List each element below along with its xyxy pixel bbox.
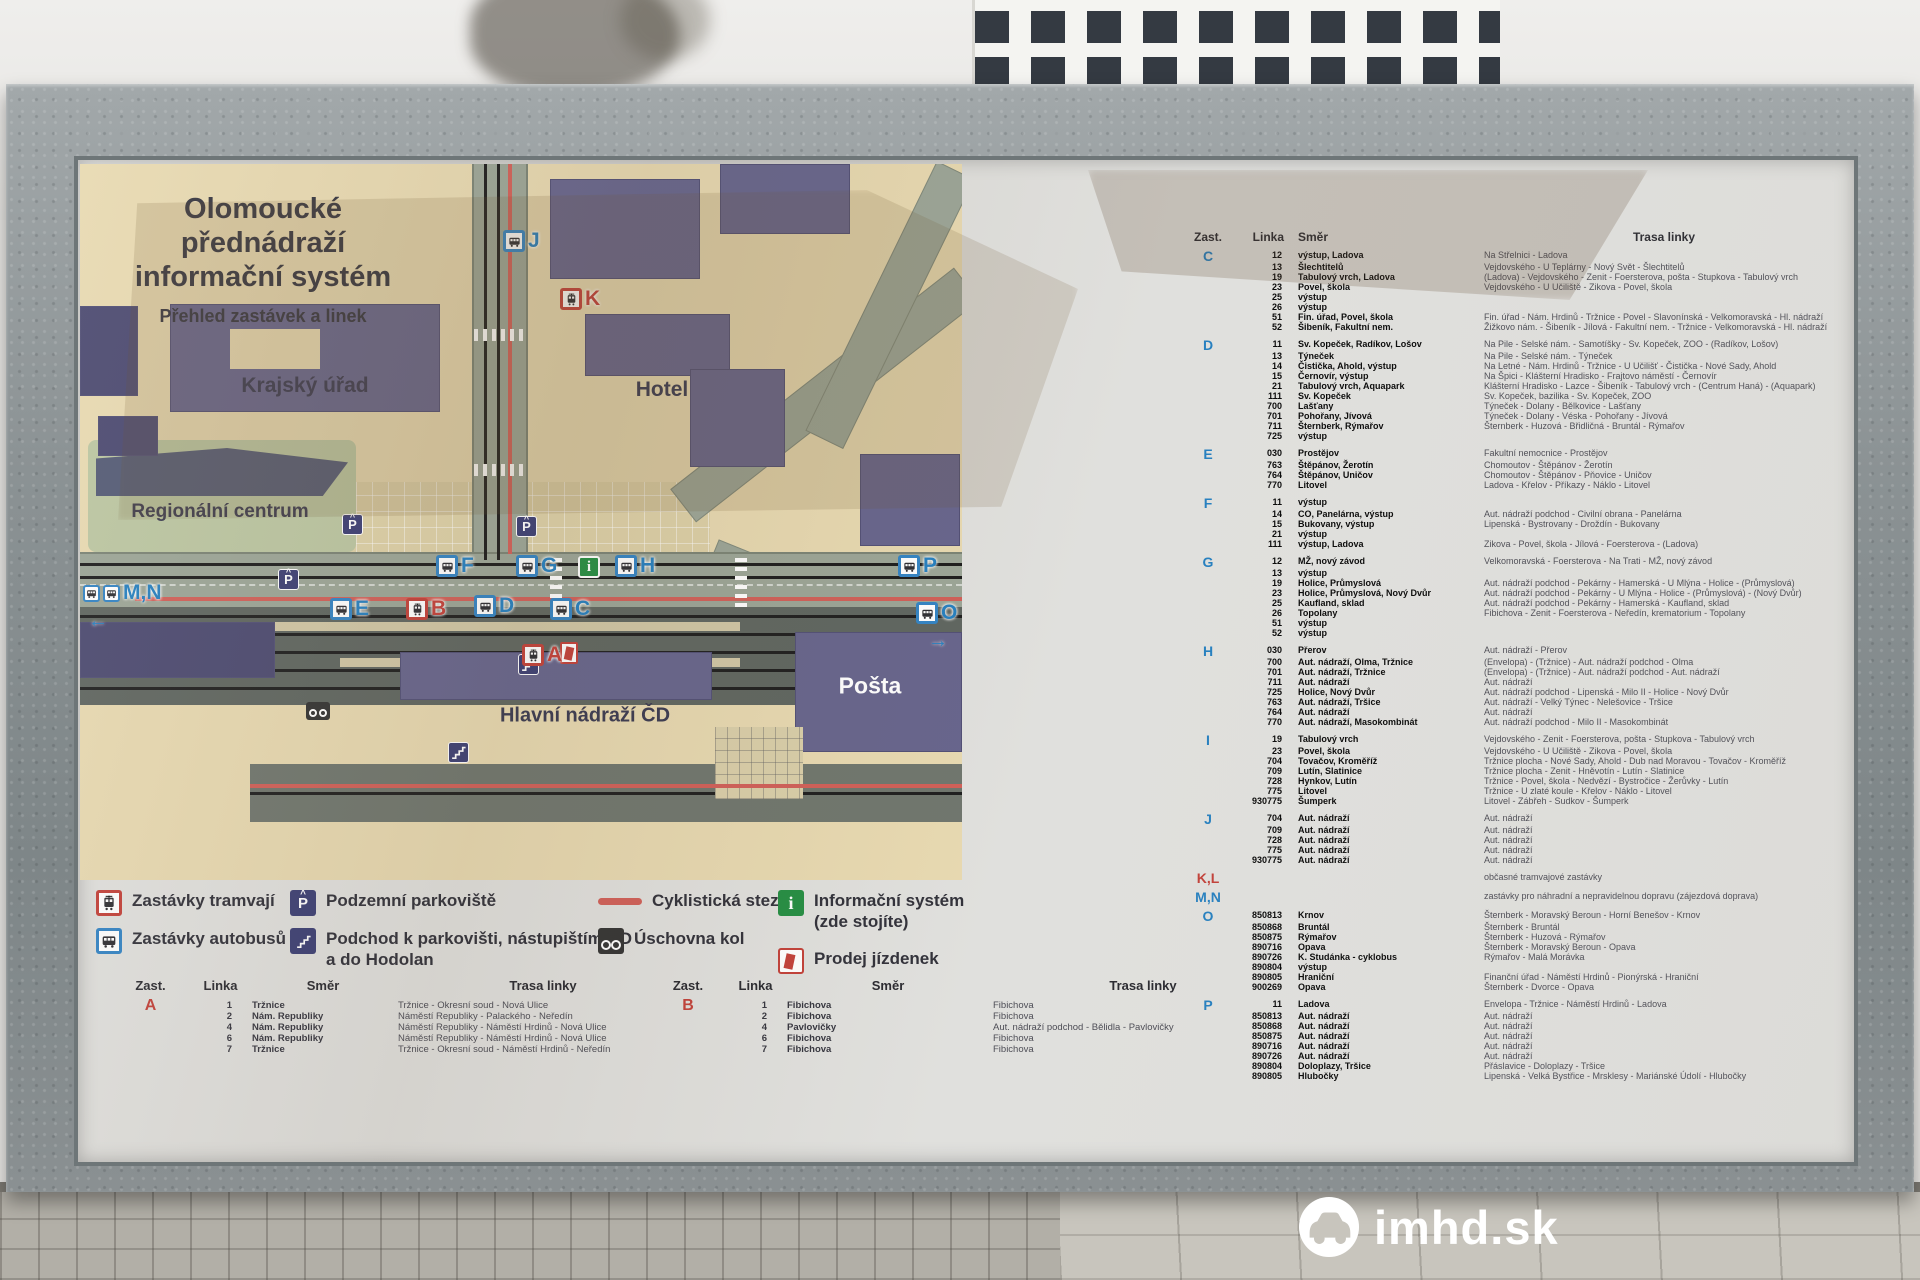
smer-cell: výstup, Ladova <box>1298 539 1484 549</box>
trasa-cell: Aut. nádraží <box>1484 1041 1848 1051</box>
zast-cell: H <box>1176 645 1240 657</box>
linka-cell: 764 <box>1240 707 1298 717</box>
zast-cell <box>1176 982 1240 992</box>
trasa-cell: Tržnice plocha - Nové Sady, Ahold - Dub … <box>1484 756 1848 766</box>
zast-cell <box>1176 480 1240 490</box>
linka-cell: 850868 <box>1240 922 1298 932</box>
trasa-cell: Aut. nádraží podchod - Lipenská - Milo I… <box>1484 687 1848 697</box>
cycle-path <box>508 164 512 554</box>
linka-cell: 709 <box>1240 825 1298 835</box>
zast-cell: M,N <box>1176 891 1240 903</box>
trasa-cell <box>1484 618 1848 628</box>
smer-cell: výstup <box>1298 628 1484 638</box>
linka-cell: 701 <box>1240 667 1298 677</box>
zast-cell <box>1176 1031 1240 1041</box>
linka-cell: 890804 <box>1240 962 1298 972</box>
smer-cell: Hraniční <box>1298 972 1484 982</box>
bus-stop-icon <box>330 598 352 620</box>
smer-cell: Sv. Kopeček <box>1298 391 1484 401</box>
trasa-cell: Přáslavice - Doloplazy - Tršice <box>1484 1061 1848 1071</box>
trasa-cell: Aut. nádraží <box>1484 825 1848 835</box>
label-posta: Pošta <box>839 673 902 700</box>
smer-cell: Sv. Kopeček, Radíkov, Lošov <box>1298 339 1484 351</box>
linka-cell: 13 <box>1240 568 1298 578</box>
tram-track <box>497 164 500 560</box>
linka-cell: 15 <box>1240 371 1298 381</box>
header-zast: Zast. <box>108 978 193 993</box>
direction-arrow-icon: ← <box>88 610 108 633</box>
bike-storage-marker <box>306 702 330 720</box>
trasa-cell: Tržnice - Povel, škola - Nedvězí - Bystr… <box>1484 776 1848 786</box>
smer-cell: Krnov <box>1298 910 1484 922</box>
trasa-cell: Náměstí Republiky - Náměstí Hrdinů - Nov… <box>398 1033 688 1044</box>
stop-letter: O <box>941 602 957 624</box>
ticket-sales-icon <box>778 948 804 974</box>
right-table-section-K,L: K,Lobčasné tramvajové zastávky <box>1176 872 1848 884</box>
right-table-section-D: D11Sv. Kopeček, Radíkov, LošovNa Pile - … <box>1176 339 1848 441</box>
right-table-section-G: G12MŽ, nový závodVelkomoravská - Foerste… <box>1176 556 1848 638</box>
linka-cell: 890804 <box>1240 1061 1298 1071</box>
smer-cell: Aut. nádraží <box>1298 1021 1484 1031</box>
linka-cell: 11 <box>1240 497 1298 509</box>
smer-cell: Čistička, Ahold, výstup <box>1298 361 1484 371</box>
zast-cell <box>1176 1051 1240 1061</box>
trasa-cell: (Envelopa) - (Tržnice) - Aut. nádraží po… <box>1484 667 1848 677</box>
stop-letter: G <box>541 555 557 577</box>
building <box>860 454 960 546</box>
underground-parking-sign: ^P <box>342 514 363 535</box>
trasa-cell: občasné tramvajové zastávky <box>1484 872 1848 884</box>
trasa-cell: Na Pile - Selské nám. - Samotíšky - Sv. … <box>1484 339 1848 351</box>
zast-cell <box>1176 697 1240 707</box>
trasa-cell: Sv. Kopeček, bazilika - Sv. Kopeček, ZOO <box>1484 391 1848 401</box>
map-stop-marker-E: E <box>330 598 369 620</box>
smer-cell: Doloplazy, Tršice <box>1298 1061 1484 1071</box>
south-road <box>250 764 962 822</box>
underground-parking-sign: ^P <box>278 569 299 590</box>
smer-cell: výstup <box>1298 962 1484 972</box>
trasa-cell: Finanční úřad - Náměstí Hrdinů - Pionýrs… <box>1484 972 1848 982</box>
linka-cell: 19 <box>1240 272 1298 282</box>
linka-cell: 763 <box>1240 697 1298 707</box>
trasa-cell: Na Špici - Klášterní Hradisko - Frajtovo… <box>1484 371 1848 381</box>
zast-cell <box>1176 598 1240 608</box>
smer-cell: Aut. nádraží, Tržnice <box>1298 667 1484 677</box>
linka-cell: 26 <box>1240 302 1298 312</box>
trasa-cell: Aut. nádraží <box>1484 707 1848 717</box>
header-smer: Směr <box>248 978 398 993</box>
map-stop-marker-O: O <box>916 602 957 624</box>
smer-cell: Prostějov <box>1298 448 1484 460</box>
smer-cell: Aut. nádraží, Tršice <box>1298 697 1484 707</box>
linka-cell: 030 <box>1240 645 1298 657</box>
linka-cell: 850868 <box>1240 1021 1298 1031</box>
zast-cell <box>1176 539 1240 549</box>
trasa-cell: Šternberk - Huzová - Rýmařov <box>1484 932 1848 942</box>
smer-cell: Ladova <box>1298 999 1484 1011</box>
linka-cell: 13 <box>1240 351 1298 361</box>
zast-cell <box>1176 628 1240 638</box>
bus-stop-icon <box>474 595 496 617</box>
smer-cell: Nám. Republiky <box>248 1022 398 1033</box>
bus-stop-icon <box>516 555 538 577</box>
zast-cell: A <box>108 1000 193 1011</box>
legend-bike-storage: Úschovna kol <box>598 928 745 954</box>
linka-cell: 890805 <box>1240 1071 1298 1081</box>
zast-cell <box>1176 361 1240 371</box>
smer-cell: Topolany <box>1298 608 1484 618</box>
bus-stop-icon <box>436 555 458 577</box>
direction-arrow-icon: → <box>928 630 948 653</box>
smer-cell: Tržnice <box>248 1044 398 1055</box>
smer-cell: výstup <box>1298 529 1484 539</box>
trasa-cell: Aut. nádraží <box>1484 1051 1848 1061</box>
smer-cell: Pavlovičky <box>783 1022 993 1033</box>
zast-cell <box>1176 845 1240 855</box>
zast-cell <box>648 1011 728 1022</box>
title-line-1: Olomoucké přednádraží <box>98 192 428 260</box>
smer-cell: Aut. nádraží <box>1298 845 1484 855</box>
linka-cell: 111 <box>1240 391 1298 401</box>
imhd-logo-icon <box>1298 1196 1360 1258</box>
zast-cell <box>1176 262 1240 272</box>
trasa-cell: Aut. nádraží <box>1484 677 1848 687</box>
table-a-header: Zast. Linka Směr Trasa linky <box>108 978 688 993</box>
lane-divider <box>80 584 962 586</box>
linka-cell: 700 <box>1240 657 1298 667</box>
right-table-section-E: E030ProstějovFakultní nemocnice - Prostě… <box>1176 448 1848 490</box>
building <box>98 416 158 456</box>
zast-cell <box>1176 1021 1240 1031</box>
smer-cell: výstup <box>1298 431 1484 441</box>
building <box>550 179 700 279</box>
smer-cell: Aut. nádraží, Olma, Tržnice <box>1298 657 1484 667</box>
smer-cell: Aut. nádraží <box>1298 813 1484 825</box>
label-krajsky-urad: Krajský úřad <box>241 374 368 398</box>
trasa-cell <box>1484 292 1848 302</box>
bus-stop-icon <box>96 928 122 954</box>
linka-cell <box>1240 891 1298 903</box>
linka-cell: 770 <box>1240 717 1298 727</box>
trasa-cell: Fakultní nemocnice - Prostějov <box>1484 448 1848 460</box>
smer-cell: Holice, Průmyslová, Nový Dvůr <box>1298 588 1484 598</box>
linka-cell: 25 <box>1240 292 1298 302</box>
smer-cell: Hlubočky <box>1298 1071 1484 1081</box>
trasa-cell: Lipenská - Velká Bystřice - Mrsklesy - M… <box>1484 1071 1848 1081</box>
linka-cell: 764 <box>1240 470 1298 480</box>
zast-cell <box>1176 608 1240 618</box>
linka-cell: 4 <box>193 1022 248 1033</box>
map-stop-marker-H: H <box>615 555 655 577</box>
crosswalk <box>735 553 747 607</box>
trasa-cell <box>1484 628 1848 638</box>
trasa-cell: Velkomoravská - Foersterova - Na Trati -… <box>1484 556 1848 568</box>
zast-cell <box>1176 825 1240 835</box>
linka-cell: 13 <box>1240 262 1298 272</box>
smer-cell: Černovír, výstup <box>1298 371 1484 381</box>
trasa-cell: Tržnice - U zlaté koule - Křelov - Náklo… <box>1484 786 1848 796</box>
zast-cell <box>108 1033 193 1044</box>
trasa-cell: Tržnice - Okresní soud - Náměstí Hrdinů … <box>398 1044 688 1055</box>
linka-cell: 2 <box>728 1011 783 1022</box>
bus-stop-icon <box>615 555 637 577</box>
bus-stop-icon <box>550 598 572 620</box>
board-title: Olomoucké přednádraží informační systém … <box>98 192 428 327</box>
zast-cell <box>1176 962 1240 972</box>
bus-stop-icon <box>103 585 120 602</box>
linka-cell: 7 <box>728 1044 783 1055</box>
right-table-section-F: F11výstup14CO, Panelárna, výstupAut. nád… <box>1176 497 1848 549</box>
smer-cell: výstup <box>1298 497 1484 509</box>
linka-cell: 725 <box>1240 431 1298 441</box>
legend-label: Podchod k parkovišti, nástupištím ČD a d… <box>326 928 632 970</box>
zast-cell <box>108 1011 193 1022</box>
smer-cell: Rýmařov <box>1298 932 1484 942</box>
linka-cell: 23 <box>1240 588 1298 598</box>
linka-cell: 775 <box>1240 786 1298 796</box>
trasa-cell <box>1484 568 1848 578</box>
stop-letter: P <box>923 555 937 577</box>
legend-label: Zastávky tramvají <box>132 890 275 911</box>
smer-cell: Fibichova <box>783 1044 993 1055</box>
smer-cell: Aut. nádraží <box>1298 825 1484 835</box>
trasa-cell: Aut. nádraží <box>1484 1021 1848 1031</box>
smer-cell: Aut. nádraží <box>1298 1031 1484 1041</box>
building <box>80 622 275 678</box>
smer-cell: Holice, Průmyslová <box>1298 578 1484 588</box>
zast-cell <box>1176 292 1240 302</box>
cycle-path <box>135 597 962 601</box>
smer-cell: Fibichova <box>783 1000 993 1011</box>
trasa-cell: Rýmařov - Malá Morávka <box>1484 952 1848 962</box>
trasa-cell: Aut. nádraží <box>1484 835 1848 845</box>
zast-cell: C <box>1176 250 1240 262</box>
trasa-cell: Aut. nádraží <box>1484 813 1848 825</box>
linka-cell: 890726 <box>1240 952 1298 962</box>
zast-cell <box>1176 707 1240 717</box>
map-stop-marker-M,N: M,N <box>83 582 162 604</box>
linka-cell: 15 <box>1240 519 1298 529</box>
zast-cell <box>1176 1071 1240 1081</box>
board-subtitle: Přehled zastávek a linek <box>98 306 428 327</box>
trasa-cell: Aut. nádraží <box>1484 845 1848 855</box>
zast-cell <box>1176 746 1240 756</box>
linka-cell: 850875 <box>1240 932 1298 942</box>
right-table-section-I: I19Tabulový vrchVejdovského - Zenit - Fo… <box>1176 734 1848 806</box>
tram-stop-icon <box>522 644 544 666</box>
title-line-2: informační systém <box>98 260 428 294</box>
map-stop-marker-G: G <box>516 555 557 577</box>
smer-cell <box>1298 891 1484 903</box>
trasa-cell: Šternberk - Dvorce - Opava <box>1484 982 1848 992</box>
zast-cell <box>1176 470 1240 480</box>
zast-cell <box>1176 1061 1240 1071</box>
map-stop-marker-P: P <box>898 555 937 577</box>
underground-parking-icon: ^P <box>290 890 316 916</box>
zast-cell <box>1176 421 1240 431</box>
smer-cell: CO, Panelárna, výstup <box>1298 509 1484 519</box>
smer-cell: Tabulový vrch, Aquapark <box>1298 381 1484 391</box>
header-zast: Zast. <box>1176 230 1240 244</box>
header-smer: Směr <box>783 978 993 993</box>
zast-cell <box>108 1022 193 1033</box>
tram-stop-icon <box>406 598 428 620</box>
smer-cell: Fibichova <box>783 1011 993 1022</box>
legend-label: Podzemní parkoviště <box>326 890 496 911</box>
linka-cell: 21 <box>1240 529 1298 539</box>
smer-cell: Aut. nádraží <box>1298 1051 1484 1061</box>
right-table-body: C12výstup, LadovaNa Střelnici - Ladova13… <box>1176 250 1848 1088</box>
zast-cell <box>648 1044 728 1055</box>
smer-cell: Aut. nádraží, Masokombinát <box>1298 717 1484 727</box>
zast-cell <box>1176 312 1240 322</box>
bike-storage-icon <box>598 928 624 954</box>
smer-cell: Lašťany <box>1298 401 1484 411</box>
tram-stop-icon <box>560 288 582 310</box>
zast-cell: J <box>1176 813 1240 825</box>
trasa-cell: Šternberk - Moravský Beroun - Opava <box>1484 942 1848 952</box>
trasa-cell: Aut. nádraží podchod - Civilní obrana - … <box>1484 509 1848 519</box>
smer-cell: Aut. nádraží <box>1298 855 1484 865</box>
linka-cell: 2 <box>193 1011 248 1022</box>
zast-cell <box>1176 272 1240 282</box>
trasa-cell: Vejdovského - U Učiliště - Zikova - Pove… <box>1484 746 1848 756</box>
trasa-cell: Šternberk - Bruntál <box>1484 922 1848 932</box>
zast-cell <box>1176 677 1240 687</box>
smer-cell: K. Studánka - cyklobus <box>1298 952 1484 962</box>
linka-cell: 711 <box>1240 677 1298 687</box>
smer-cell: Litovel <box>1298 786 1484 796</box>
linka-cell: 850875 <box>1240 1031 1298 1041</box>
linka-cell: 775 <box>1240 845 1298 855</box>
smer-cell: výstup <box>1298 302 1484 312</box>
tram-track <box>484 164 487 560</box>
legend-bus-stops: Zastávky autobusů <box>96 928 286 954</box>
trasa-cell: Žižkovo nám. - Šibeník - Jílová - Fakult… <box>1484 322 1848 332</box>
trasa-cell: Aut. nádraží - Velký Týnec - Nelešovice … <box>1484 697 1848 707</box>
building-hotel <box>585 314 730 376</box>
trasa-cell <box>1484 529 1848 539</box>
smer-cell: Týneček <box>1298 351 1484 361</box>
smer-cell: Štěpánov, Uničov <box>1298 470 1484 480</box>
ticket-sales-marker <box>560 642 578 664</box>
linka-cell: 900269 <box>1240 982 1298 992</box>
linka-cell: 111 <box>1240 539 1298 549</box>
parking-lot <box>715 727 803 799</box>
legend-underground-parking: ^P Podzemní parkoviště <box>290 890 496 916</box>
zast-cell <box>1176 351 1240 361</box>
linka-cell: 6 <box>728 1033 783 1044</box>
underground-parking-sign: ^P <box>516 516 537 537</box>
stop-letter: F <box>461 555 474 577</box>
label-regionalni-centrum: Regionální centrum <box>131 501 308 523</box>
zast-cell <box>1176 952 1240 962</box>
legend-info-system: i Informační systém (zde stojíte) <box>778 890 964 932</box>
imhd-logo-text: imhd.sk <box>1374 1200 1559 1255</box>
zast-cell <box>1176 460 1240 470</box>
legend-underpass: Podchod k parkovišti, nástupištím ČD a d… <box>290 928 632 970</box>
smer-cell: Šlechtitelů <box>1298 262 1484 272</box>
linka-cell: 19 <box>1240 734 1298 746</box>
trasa-cell: Aut. nádraží <box>1484 855 1848 865</box>
linka-cell: 704 <box>1240 756 1298 766</box>
zast-cell <box>1176 1011 1240 1021</box>
zast-cell <box>1176 431 1240 441</box>
smer-cell: Bruntál <box>1298 922 1484 932</box>
smer-cell: výstup, Ladova <box>1298 250 1484 262</box>
map-stop-marker-B: B <box>406 598 446 620</box>
label-hotel: Hotel <box>636 378 689 402</box>
smer-cell: Fibichova <box>783 1033 993 1044</box>
trasa-cell: (Ladova) - Vejdovského - Zenit - Foerste… <box>1484 272 1848 282</box>
info-system-marker: i <box>578 556 600 578</box>
zast-cell <box>1176 922 1240 932</box>
smer-cell: Opava <box>1298 982 1484 992</box>
smer-cell: Tabulový vrch, Ladova <box>1298 272 1484 282</box>
zast-cell <box>1176 282 1240 292</box>
right-table-section-M,N: M,Nzastávky pro náhradní a nepravidelnou… <box>1176 891 1848 903</box>
smer-cell: Fin. úřad, Povel, škola <box>1298 312 1484 322</box>
smer-cell: Pohořany, Jívová <box>1298 411 1484 421</box>
stop-letter: B <box>431 598 446 620</box>
linka-cell: 23 <box>1240 282 1298 292</box>
zast-cell <box>1176 855 1240 865</box>
smer-cell: výstup <box>1298 618 1484 628</box>
smer-cell: Aut. nádraží <box>1298 835 1484 845</box>
linka-cell: 890805 <box>1240 972 1298 982</box>
trasa-cell: Fin. úřad - Nám. Hrdinů - Tržnice - Pove… <box>1484 312 1848 322</box>
map-stop-marker-D: D <box>474 595 514 617</box>
trasa-cell: Litovel - Zábřeh - Sudkov - Šumperk <box>1484 796 1848 806</box>
trasa-cell: Týneček - Dolany - Véska - Pohořany - Jí… <box>1484 411 1848 421</box>
header-trasa: Trasa linky <box>398 978 688 993</box>
map-stop-marker-K: K <box>560 288 600 310</box>
linka-cell: 890716 <box>1240 1041 1298 1051</box>
bus-stop-icon <box>898 555 920 577</box>
smer-cell: Bukovany, výstup <box>1298 519 1484 529</box>
trasa-cell: Aut. nádraží <box>1484 1011 1848 1021</box>
smer-cell: Aut. nádraží <box>1298 707 1484 717</box>
linka-cell: 52 <box>1240 322 1298 332</box>
zast-cell: G <box>1176 556 1240 568</box>
smer-cell: Tržnice <box>248 1000 398 1011</box>
map-stop-marker-J: J <box>503 230 540 252</box>
zast-cell <box>1176 578 1240 588</box>
linka-cell: 711 <box>1240 421 1298 431</box>
trasa-cell: Aut. nádraží podchod - Milo II - Masokom… <box>1484 717 1848 727</box>
stop-letter: H <box>640 555 655 577</box>
stop-letter: A <box>547 644 562 666</box>
trasa-cell: Aut. nádraží podchod - Pekárny - U Mlýna… <box>1484 588 1848 598</box>
background-building <box>972 0 1500 95</box>
trasa-cell: Klášterní Hradisko - Lazce - Šibeník - T… <box>1484 381 1848 391</box>
trasa-cell: Týneček - Dolany - Bělkovice - Lašťany <box>1484 401 1848 411</box>
trasa-cell: Na Střelnici - Ladova <box>1484 250 1848 262</box>
info-system-icon: i <box>778 890 804 916</box>
transit-map: Olomoucké přednádraží informační systém … <box>80 164 962 880</box>
legend-cycle-path: Cyklistická stezka <box>598 890 798 911</box>
trasa-cell: (Envelopa) - (Tržnice) - Aut. nádraží po… <box>1484 657 1848 667</box>
linka-cell: 704 <box>1240 813 1298 825</box>
legend-label: Zastávky autobusů <box>132 928 286 949</box>
right-table-section-C: C12výstup, LadovaNa Střelnici - Ladova13… <box>1176 250 1848 332</box>
building-hotel-wing <box>690 369 785 467</box>
zast-cell <box>648 1033 728 1044</box>
linka-cell: 770 <box>1240 480 1298 490</box>
linka-cell: 23 <box>1240 746 1298 756</box>
zast-cell: O <box>1176 910 1240 922</box>
trasa-cell: Aut. nádraží podchod - Pekárny - Hamersk… <box>1484 598 1848 608</box>
